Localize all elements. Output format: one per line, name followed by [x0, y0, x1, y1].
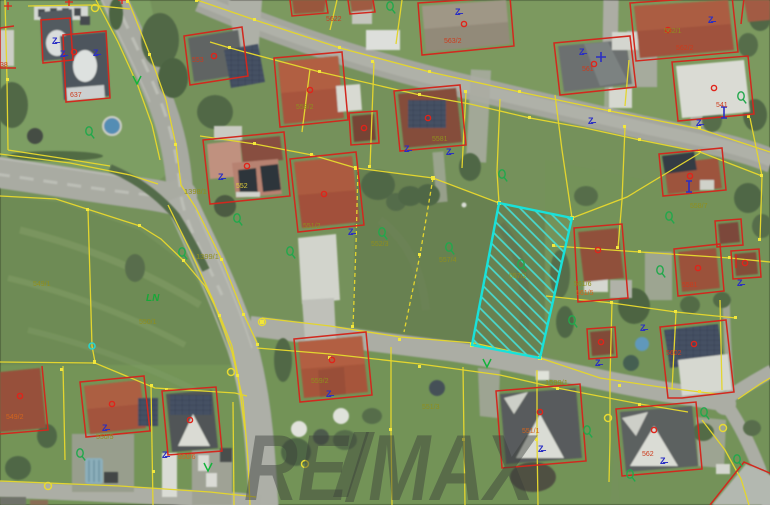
- svg-text:38: 38: [0, 62, 8, 69]
- svg-text:559/2: 559/2: [311, 378, 329, 385]
- svg-text:557/2: 557/2: [509, 273, 527, 280]
- svg-text:562: 562: [642, 451, 654, 458]
- svg-text:5622: 5622: [326, 16, 342, 23]
- svg-text:RE/MAX: RE/MAX: [244, 415, 538, 505]
- svg-text:1599/1: 1599/1: [545, 378, 568, 387]
- svg-text:562/2: 562/2: [676, 45, 694, 52]
- svg-text:5581: 5581: [432, 136, 448, 143]
- svg-text:561: 561: [582, 66, 594, 73]
- svg-text:558/2: 558/2: [296, 104, 314, 111]
- svg-text:549/2: 549/2: [6, 414, 24, 421]
- svg-text:5581: 5581: [682, 282, 698, 289]
- svg-text:558/7: 558/7: [690, 203, 708, 210]
- svg-text:1398/1: 1398/1: [184, 187, 207, 196]
- svg-text:551/3: 551/3: [422, 404, 440, 411]
- svg-text:637: 637: [70, 92, 82, 99]
- svg-text:561/6: 561/6: [574, 281, 592, 288]
- svg-text:541: 541: [716, 102, 728, 109]
- svg-text:563/2: 563/2: [444, 38, 462, 45]
- svg-text:551/2: 551/2: [303, 223, 321, 230]
- svg-text:1399/1: 1399/1: [196, 252, 219, 261]
- svg-text:553: 553: [192, 57, 204, 64]
- svg-text:550/5: 550/5: [96, 434, 114, 441]
- svg-text:LN: LN: [146, 293, 160, 304]
- svg-text:5602: 5602: [666, 350, 682, 357]
- svg-text:562/1: 562/1: [664, 28, 682, 35]
- svg-text:550/6: 550/6: [178, 454, 196, 461]
- svg-text:557/4: 557/4: [439, 257, 457, 264]
- svg-text:552/3: 552/3: [371, 241, 389, 248]
- svg-text:561/5: 561/5: [576, 290, 594, 297]
- svg-text:550/1: 550/1: [139, 319, 157, 326]
- svg-text:549/1: 549/1: [33, 281, 51, 288]
- svg-text:552: 552: [236, 183, 248, 190]
